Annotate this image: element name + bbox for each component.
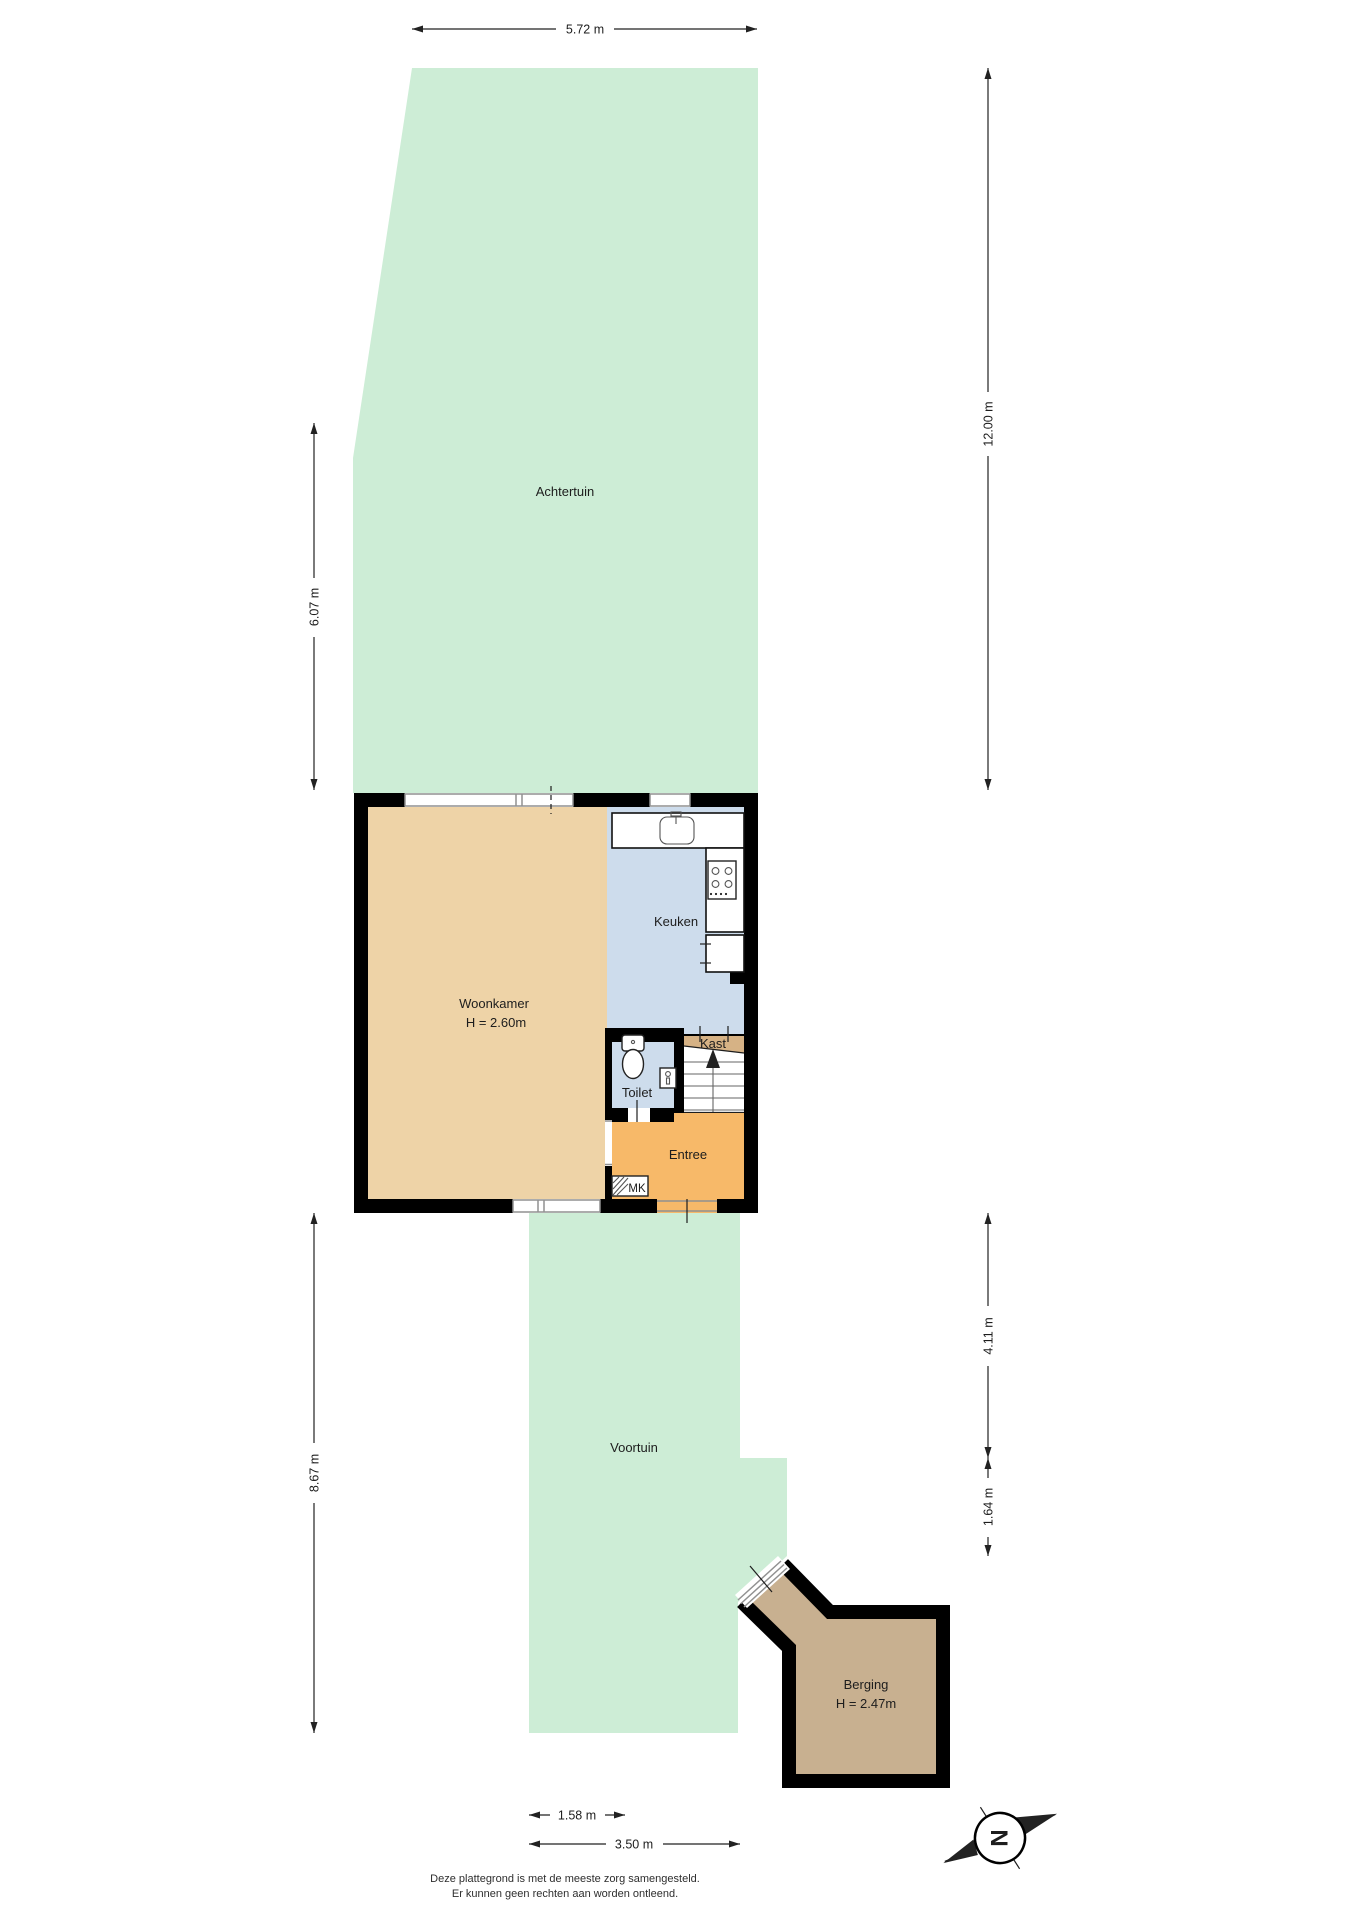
dimension-bottom-path: 1.58 m (529, 1809, 625, 1823)
footer-line-2: Er kunnen geen rechten aan worden ontlee… (452, 1888, 678, 1900)
house: MK (354, 786, 758, 1223)
meter-cabinet-label: MK (628, 1183, 646, 1195)
bottom-wall-right (717, 1199, 758, 1213)
meter-cabinet: MK (612, 1176, 648, 1196)
top-wall-segment-right (690, 793, 758, 807)
living-room-label: Woonkamer (459, 996, 530, 1011)
stove-icon (708, 861, 736, 899)
dimension-top-width: 5.72 m (412, 23, 757, 37)
house-left-wall (354, 793, 368, 1213)
hand-basin-icon (660, 1068, 676, 1088)
shed-label: Berging (844, 1677, 889, 1692)
dimension-bottom-path-label: 1.58 m (558, 1809, 596, 1823)
toilet-door-opening (628, 1108, 650, 1122)
dimension-left-back-garden-label: 6.07 m (308, 588, 322, 626)
living-hall-door (605, 1120, 612, 1166)
kitchen-window-north (650, 794, 690, 806)
kitchen-label: Keuken (654, 914, 698, 929)
bottom-wall-left (354, 1199, 513, 1213)
dimension-left-back-garden: 6.07 m (308, 423, 322, 790)
shed-height: H = 2.47m (836, 1696, 896, 1711)
dimension-bottom-front-garden-label: 3.50 m (615, 1838, 653, 1852)
dimension-top-width-label: 5.72 m (566, 23, 604, 37)
toilet-label: Toilet (622, 1085, 653, 1100)
dimension-bottom-front-garden: 3.50 m (529, 1838, 740, 1852)
dimension-right-front-lower-label: 1.64 m (982, 1488, 996, 1526)
front-garden-shape (529, 1213, 787, 1733)
shed: Berging H = 2.47m (735, 1556, 943, 1781)
dimension-right-front-upper-label: 4.11 m (982, 1317, 996, 1354)
dimension-right-back-garden-label: 12.00 m (982, 401, 996, 446)
closet-label: Kast (700, 1036, 726, 1051)
floorplan-page: Achtertuin Voortuin (0, 0, 1358, 1920)
toilet-icon (622, 1035, 644, 1079)
kitchen-wall-stub (730, 972, 744, 984)
footer-disclaimer: Deze plattegrond is met de meeste zorg s… (430, 1873, 700, 1900)
dimension-left-front-garden-label: 8.67 m (308, 1454, 322, 1492)
back-garden-area: Achtertuin (353, 68, 758, 793)
bottom-wall-mid (600, 1199, 657, 1213)
back-garden-shape (353, 68, 758, 793)
front-garden-area: Voortuin (529, 1213, 787, 1733)
dimension-right-back-garden: 12.00 m (982, 68, 996, 790)
living-room-height: H = 2.60m (466, 1015, 526, 1030)
front-garden-label: Voortuin (610, 1440, 658, 1455)
dimension-right-front-upper: 4.11 m (982, 1213, 996, 1458)
compass-letter: N (985, 1829, 1012, 1846)
house-right-wall (744, 793, 758, 1213)
kitchen-floor-lower (684, 984, 744, 1035)
living-room-window-south (513, 1200, 600, 1212)
compass-icon: N (929, 1781, 1071, 1896)
back-garden-label: Achtertuin (536, 484, 595, 499)
dimension-right-front-lower: 1.64 m (982, 1458, 996, 1556)
footer-line-1: Deze plattegrond is met de meeste zorg s… (430, 1873, 700, 1885)
dimension-left-front-garden: 8.67 m (308, 1213, 322, 1920)
shed-shape (742, 1564, 943, 1781)
entry-label: Entree (669, 1147, 707, 1162)
